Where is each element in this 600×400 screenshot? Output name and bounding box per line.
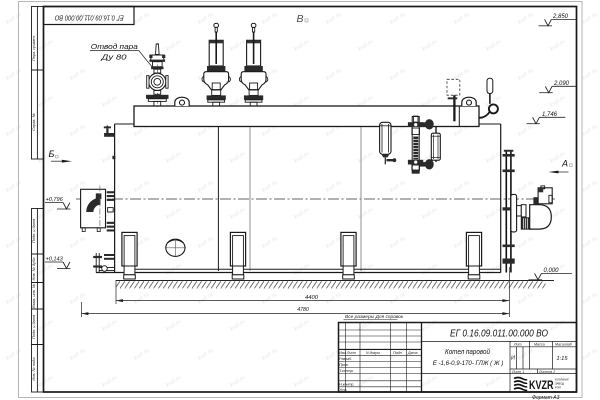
svg-text:4780: 4780 [297,307,309,313]
svg-text:Котел паровой: Котел паровой [445,348,490,356]
svg-text:Лист 1: Лист 1 [511,370,524,374]
svg-text:А: А [561,159,568,169]
svg-text:ЕГ 0.16.09.011.00.000 ВО: ЕГ 0.16.09.011.00.000 ВО [450,328,548,339]
svg-text:ЕГ 0.16.09.011.00.000 ВО: ЕГ 0.16.09.011.00.000 ВО [55,13,124,22]
svg-text:N докум.: N докум. [366,351,381,355]
svg-text:Н.контр.: Н.контр. [339,383,354,387]
svg-text:Подп.: Подп. [393,351,403,355]
svg-text:+0,796: +0,796 [46,197,64,203]
svg-text:KVZR: KVZR [529,380,554,392]
svg-text:Инв. № дубл.: Инв. № дубл. [31,257,36,281]
svg-text:Взам. инв. №: Взам. инв. № [31,283,36,308]
svg-text:Лит.: Лит. [513,343,522,347]
svg-text:Инв. № подл.: Инв. № подл. [31,356,36,380]
svg-text:Разраб.: Разраб. [339,357,352,361]
svg-text:Справ. №: Справ. № [31,112,36,130]
svg-text:Изм.Лист: Изм.Лист [339,351,356,355]
svg-text:Все размеры Для справок: Все размеры Для справок [345,314,404,320]
svg-text:+0,143: +0,143 [46,257,64,263]
svg-text:Дата: Дата [407,351,417,355]
svg-text:Т.контр.: Т.контр. [339,369,354,373]
svg-text:Пров.: Пров. [339,363,348,367]
svg-text:И: И [511,356,515,362]
svg-text:Подп. и дата: Подп. и дата [31,314,36,339]
svg-text:1,746: 1,746 [542,112,558,118]
svg-text:2,090: 2,090 [553,81,570,87]
svg-text:РЭП: РЭП [555,386,561,390]
svg-text:Формат А3: Формат А3 [532,395,560,400]
svg-text:Б: Б [49,149,55,159]
svg-text:Утв.: Утв. [339,388,347,392]
svg-text:Листов 2: Листов 2 [538,370,555,374]
svg-text:Масштаб: Масштаб [555,343,573,347]
svg-text:Отвод пара: Отвод пара [91,42,138,51]
svg-text:1:15: 1:15 [556,356,568,362]
svg-text:Подп. и дата: Подп. и дата [31,218,36,243]
svg-text:Перв. примен.: Перв. примен. [31,35,36,61]
svg-text:4400: 4400 [305,295,319,301]
svg-text:2,850: 2,850 [552,14,569,20]
svg-text:Е -1,6-0,9-170- ГЛЖ ( Ж ): Е -1,6-0,9-170- ГЛЖ ( Ж ) [433,360,504,367]
svg-text:В: В [297,13,304,25]
svg-text:Масса: Масса [534,343,545,347]
svg-text:Ду 80: Ду 80 [100,52,126,61]
svg-text:0,000: 0,000 [544,268,560,274]
